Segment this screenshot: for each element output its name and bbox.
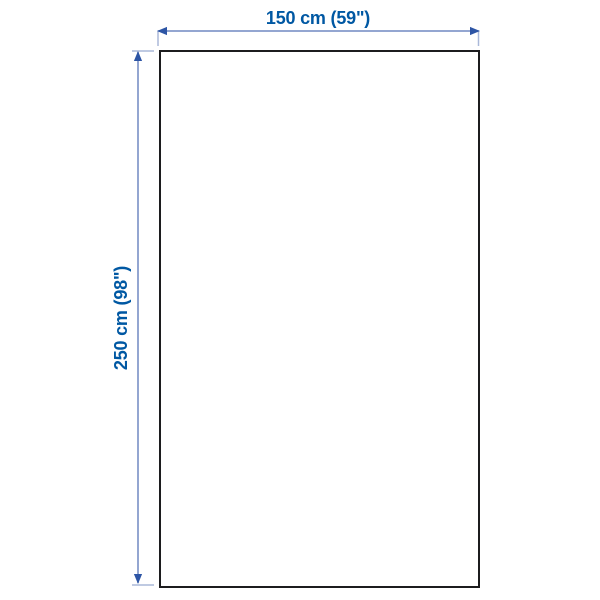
- arrow-up-icon: [134, 51, 142, 61]
- dimension-diagram-canvas: 150 cm (59") 250 cm (98"): [0, 0, 600, 600]
- product-outline: [160, 51, 479, 587]
- height-dimension-label: 250 cm (98"): [111, 266, 131, 370]
- arrow-down-icon: [134, 574, 142, 584]
- width-dimension-label: 150 cm (59"): [266, 8, 370, 28]
- height-dimension: 250 cm (98"): [111, 51, 154, 585]
- dimension-diagram: 150 cm (59") 250 cm (98"): [0, 0, 600, 600]
- width-dimension: 150 cm (59"): [157, 8, 480, 46]
